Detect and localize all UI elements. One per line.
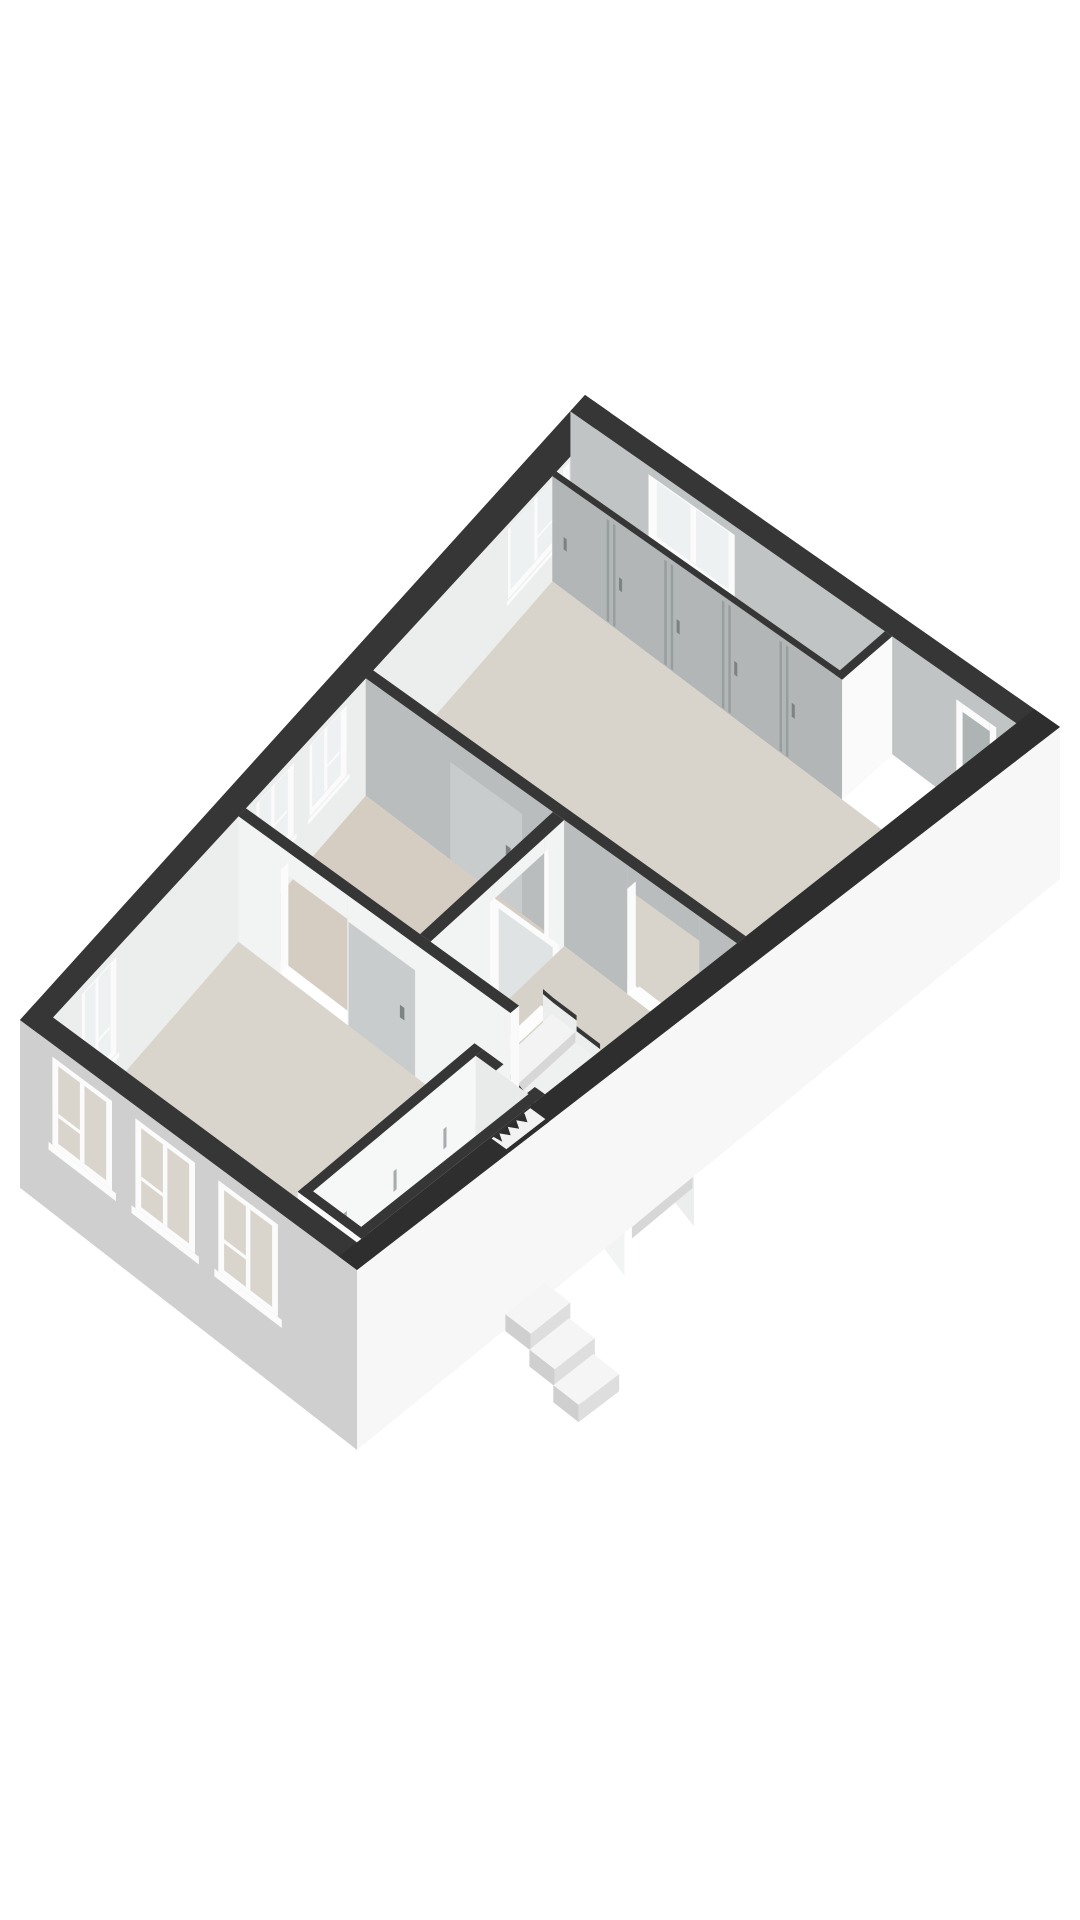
floor-plan-3d-render: [0, 0, 1080, 1920]
entrance-steps: [505, 1283, 619, 1423]
floor-plan-page: [0, 0, 1080, 1920]
